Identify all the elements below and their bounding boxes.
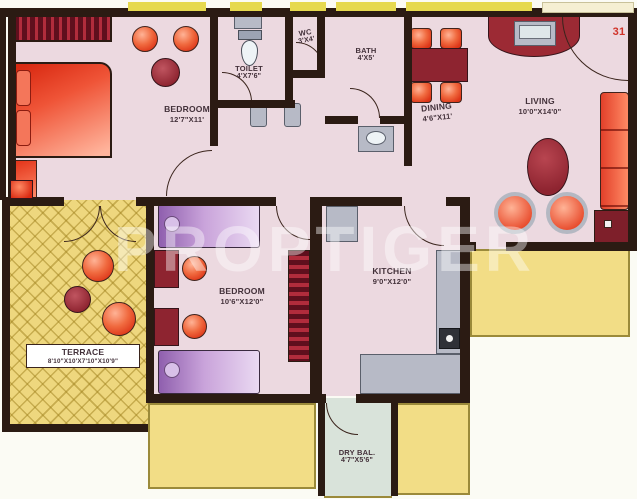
floor-plan: BEDROOM 12'7"X11' TOILET 4'X7'6" WC 3'X4… [0,0,637,499]
wall [391,398,398,496]
terrace-label: TERRACE 8'10"X10'X7'10"X10'9" [26,344,140,368]
toilet-label: TOILET 4'X7'6" [216,64,282,82]
wall [404,14,412,166]
wall [325,116,358,124]
corner-unit [594,210,630,246]
room-dims: 9'0"X12'0" [352,277,432,286]
bedroom2-label: BEDROOM 10'6"X12'0" [192,286,292,306]
pillow [164,362,180,378]
room-dims: 4'X5' [340,55,392,64]
room-name: KITCHEN [372,266,411,276]
living-label: LIVING 10'0"X14'0" [500,96,580,116]
wardrobe [288,250,310,362]
wall [322,197,402,206]
pillow [16,70,31,106]
room-dims: 12'7"X11' [132,115,242,124]
round-table [102,302,136,336]
living-balcony [470,249,630,337]
washbasin-bowl [366,131,386,145]
wall [285,14,293,104]
top-ledge-strip [290,2,326,11]
coffee-table [527,138,569,196]
room-dims: 8'10"X10'X7'10"X10'9" [27,358,139,366]
chair [132,26,158,52]
round-table [82,250,114,282]
wall [317,14,325,76]
sofa [600,92,629,210]
room-name: LIVING [525,96,555,106]
pillow [164,216,180,232]
wall [318,398,325,496]
top-ledge-strip [406,2,532,11]
top-ledge-strip [336,2,396,11]
dry-balcony-label: DRY BAL. 4'7"X5'6" [326,448,388,466]
wall [154,197,276,206]
wall [466,242,476,251]
top-ledge-strip [230,2,262,11]
bath-label: BATH 4'X5' [340,46,392,64]
top-ledge-strip [128,2,206,11]
bedroom1-label: BEDROOM 12'7"X11' [132,104,242,124]
unit-number: 31 [606,26,632,40]
dining-chair [410,82,432,103]
seat [154,250,179,288]
room-name: DRY BAL. [339,448,376,457]
sink-drain [446,335,453,342]
room-name: BEDROOM [164,104,210,114]
planter [10,180,33,199]
wall [146,394,318,403]
wall [293,70,325,78]
armchair [494,192,536,234]
wall [2,197,10,432]
dining-chair [440,28,462,49]
wall [628,8,637,251]
room-name: BATH [355,46,376,55]
fridge [326,206,358,242]
chair [173,26,199,52]
tv-screen [519,25,551,39]
bottom-left-ledge [148,403,316,489]
chair [182,256,207,281]
seat [154,308,179,346]
bottom-right-ledge [396,403,470,495]
pillow [16,110,31,146]
chair [182,314,207,339]
room-dims: 4'7"X5'6" [326,457,388,466]
room-dims: 10'0"X14'0" [500,107,580,116]
corner-unit-knob [604,220,612,228]
wall [356,394,470,403]
wall [310,200,322,394]
wall [146,197,154,403]
kitchen-platform [360,354,462,394]
dining-table [406,48,468,82]
room-name: TOILET [235,64,263,73]
wall [2,424,148,432]
room-dims: 10'6"X12'0" [192,297,292,306]
dining-chair [410,28,432,49]
room-name: BEDROOM [219,286,265,296]
top-ledge-strip [542,2,634,13]
round-table [151,58,180,87]
wall [460,197,470,402]
toilet-tank [238,30,262,40]
armchair [546,192,588,234]
room-name: TERRACE [62,347,105,357]
wall [506,242,636,251]
kitchen-label: KITCHEN 9'0"X12'0" [352,266,432,286]
wall [8,14,16,200]
room-dims: 4'X7'6" [216,73,282,82]
wall [0,8,6,200]
round-table [64,286,91,313]
